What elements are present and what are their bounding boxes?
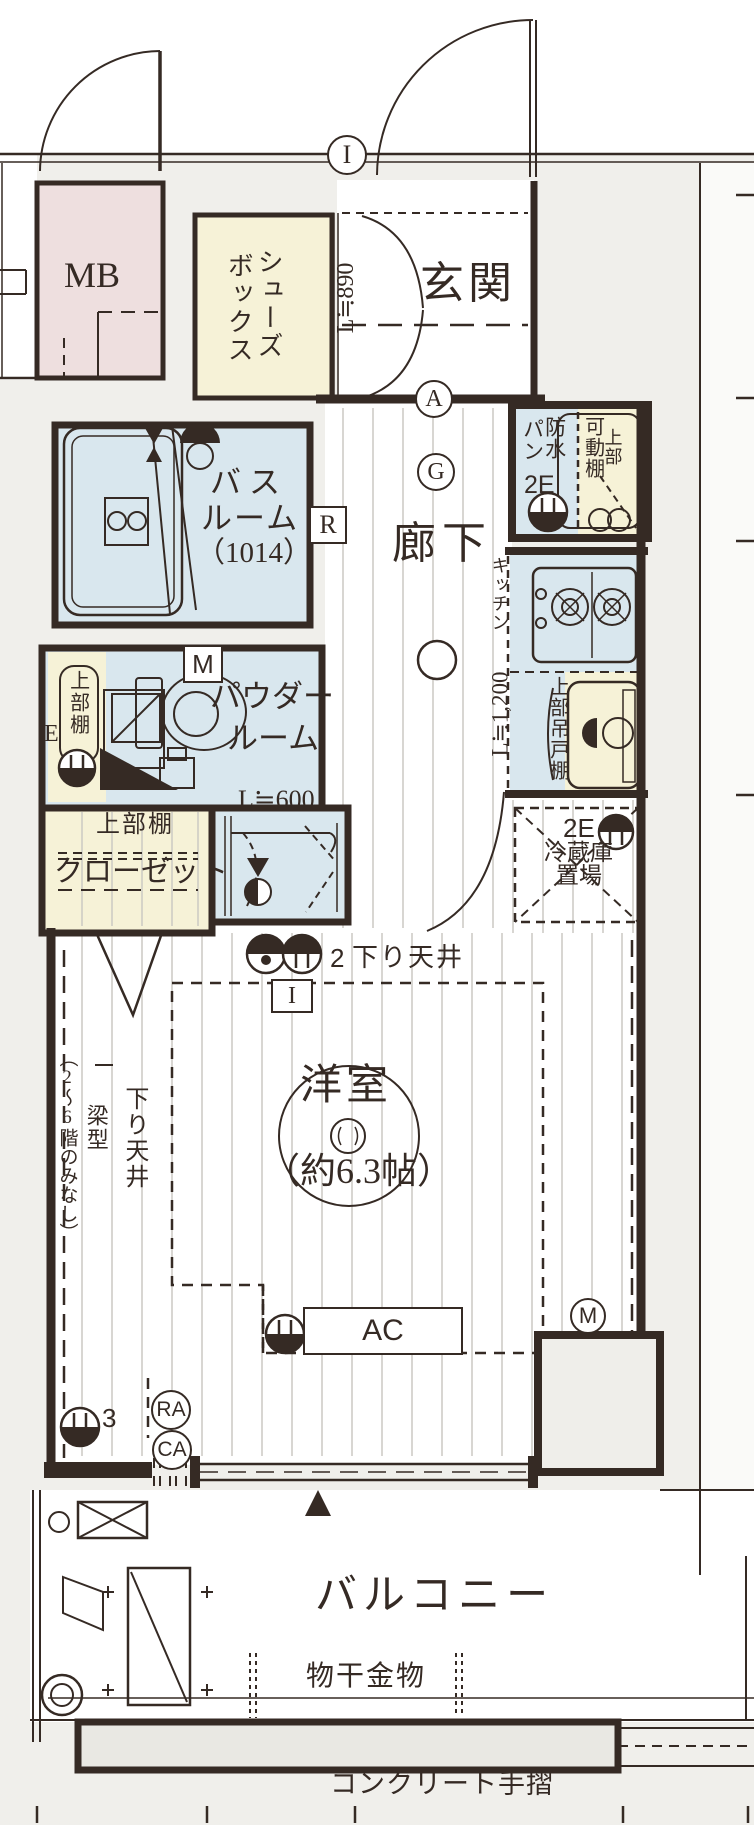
mark-i-box: I bbox=[271, 979, 313, 1013]
mark-g-circle: G bbox=[417, 453, 455, 491]
room-label-bath-3: （1014） bbox=[196, 538, 312, 569]
laundry-pan-label-2: パン bbox=[521, 418, 544, 462]
room-label-powder-1: パウダー bbox=[210, 680, 334, 713]
lowered-ceiling-label-v: 下り天井 bbox=[120, 1086, 146, 1190]
lowered-ceiling-label-h: 下り天井 bbox=[352, 944, 464, 972]
room-label-meter-box: MB bbox=[64, 256, 120, 295]
fridge-spec: 2E bbox=[563, 814, 595, 842]
room-label-entrance: 玄関 bbox=[420, 260, 516, 308]
concrete-handrail-label: コンクリート手摺 bbox=[330, 1770, 554, 1799]
laundry-hardware-label: 物干金物 bbox=[306, 1662, 426, 1692]
mark-i-circle: I bbox=[327, 135, 367, 175]
vanity-nook bbox=[212, 808, 348, 922]
room-label-hallway: 廊下 bbox=[392, 520, 492, 568]
movable-shelf-upper-label: 上部 bbox=[602, 428, 621, 466]
room-label-kitchen: キッチン bbox=[489, 556, 508, 632]
ac-box: AC bbox=[303, 1307, 463, 1355]
room-label-powder-2: ルーム bbox=[227, 722, 319, 755]
mark-e-label: E bbox=[44, 722, 59, 748]
room-label-shoebox-2: ボックス bbox=[224, 252, 252, 364]
laundry-pan-spec: 2E bbox=[524, 472, 555, 499]
kitchen-block bbox=[505, 551, 648, 794]
hanging-cupboard-label: 上部吊戸棚 bbox=[546, 676, 568, 781]
outlet-count-3: 3 bbox=[102, 1404, 116, 1432]
movable-shelf-label: 可動棚 bbox=[581, 416, 603, 479]
mark-m-box: M bbox=[183, 645, 223, 683]
corner-outlet-icon bbox=[61, 1408, 99, 1446]
ac-outlet-icon bbox=[266, 1315, 304, 1353]
dim-kitchen: L≒1,200 bbox=[489, 671, 514, 756]
beam-note: （2～6階のみなし） bbox=[56, 1048, 77, 1242]
dim-entrance: L≒890 bbox=[334, 263, 360, 334]
dim-vanity: L≒600 bbox=[238, 786, 315, 814]
closet-shelf-label: 上部棚 bbox=[96, 813, 174, 839]
room-label-western: 洋室 bbox=[300, 1064, 392, 1109]
mark-m-circle: M bbox=[570, 1298, 606, 1334]
hallway-circle bbox=[418, 641, 456, 679]
room-label-closet: クローゼット bbox=[54, 857, 228, 888]
common-corridor bbox=[0, 0, 754, 154]
beam-label: 梁型 bbox=[84, 1104, 108, 1152]
fridge-label-2: 置場 bbox=[556, 864, 602, 889]
room-label-shoebox-1: シューズ bbox=[254, 248, 282, 360]
mark-ca-circle: CA bbox=[152, 1430, 192, 1470]
mark-a-circle: A bbox=[415, 380, 453, 418]
laundry-pan-label-1: 防水 bbox=[543, 416, 566, 460]
mark-r-box: R bbox=[309, 506, 347, 544]
room-label-western-size: （約6.3帖） bbox=[264, 1152, 453, 1191]
room-label-bath-2: ルーム bbox=[201, 502, 299, 535]
room-label-bath-1: バス bbox=[210, 466, 288, 499]
pillar bbox=[538, 1335, 660, 1472]
outlet-icon bbox=[59, 750, 95, 786]
room-label-balcony: バルコニー bbox=[315, 1574, 554, 1619]
mark-ra-circle: RA bbox=[151, 1390, 191, 1430]
concrete-handrail-wall bbox=[78, 1722, 618, 1770]
outlet-count: 2 bbox=[330, 944, 344, 972]
floor-plan: MB シューズ ボックス 玄関 L≒890 I A G R 廊下 防水 パン 2… bbox=[0, 0, 754, 1825]
powder-shelf-label: 上部棚 bbox=[66, 670, 88, 736]
